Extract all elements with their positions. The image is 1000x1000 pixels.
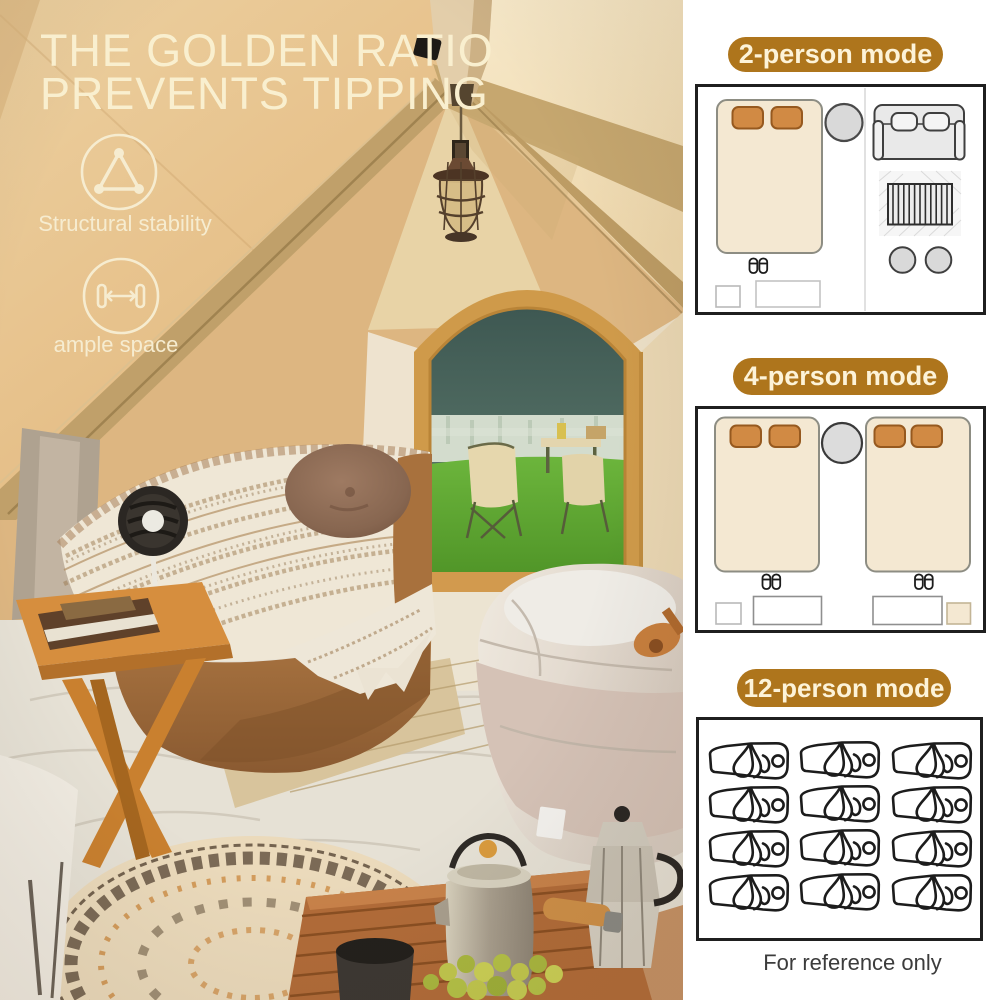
svg-text:ample space: ample space: [54, 332, 179, 357]
svg-text:Structural stability: Structural stability: [38, 211, 212, 236]
svg-text:PREVENTS TIPPING: PREVENTS TIPPING: [40, 68, 489, 119]
